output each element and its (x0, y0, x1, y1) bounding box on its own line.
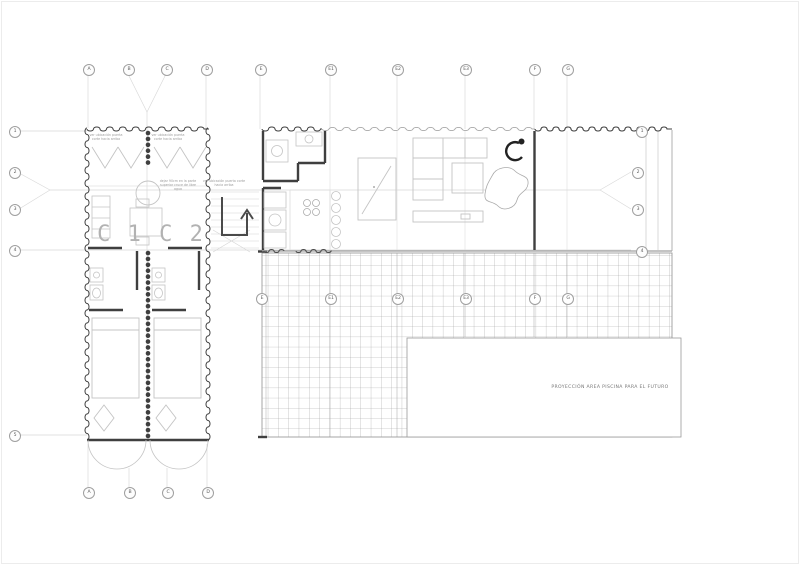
grid-marker-right-2: 2 (632, 167, 644, 179)
grid-marker-deck-e: E (256, 293, 268, 305)
grid-marker-top-b: B (123, 64, 135, 76)
deck-area (258, 252, 681, 438)
grid-marker-deck-e3: E3 (460, 293, 472, 305)
grid-marker-right-4: 4 (636, 246, 648, 258)
floor-plan-canvas: A B C D E E1 E2 E3 F G A B C D 1 2 3 4 5… (0, 0, 800, 565)
plan-linework (0, 0, 800, 565)
grid-marker-left-5: 5 (9, 430, 21, 442)
rug-outline (485, 168, 528, 209)
unit-label-c2: C 2 (156, 222, 208, 247)
grid-marker-top-e2: E2 (392, 64, 404, 76)
grid-marker-deck-e1: E1 (325, 293, 337, 305)
grid-marker-deck-e2: E2 (392, 293, 404, 305)
grid-marker-top-e1: E1 (325, 64, 337, 76)
grid-marker-left-3: 3 (9, 204, 21, 216)
grid-marker-top-d: D (201, 64, 213, 76)
grid-marker-top-a: A (83, 64, 95, 76)
grid-marker-right-3: 3 (632, 204, 644, 216)
grid-marker-bottom-d: D (202, 487, 214, 499)
grid-marker-deck-f: F (529, 293, 541, 305)
grid-marker-top-e3: E3 (460, 64, 472, 76)
grid-marker-bottom-c: C (162, 487, 174, 499)
grid-marker-left-2: 2 (9, 167, 21, 179)
grid-marker-left-1: 1 (9, 126, 21, 138)
unit-label-c1: C 1 (94, 222, 146, 247)
annotation-stairs: ver ubicación puerta corte hacia arriba (202, 180, 246, 188)
grid-marker-deck-g: G (562, 293, 574, 305)
grid-marker-bottom-b: B (124, 487, 136, 499)
grid-marker-right-1: 1 (636, 126, 648, 138)
main-wing (262, 130, 672, 251)
fireplace-icon (506, 139, 524, 161)
annotation-c2-top: ver ubicación puerta corte hacia arriba (150, 134, 186, 142)
annotation-c1-top: ver ubicación puerta corte hacia arriba (88, 134, 124, 142)
grid-marker-top-e: E (255, 64, 267, 76)
grid-marker-top-c: C (161, 64, 173, 76)
stairs (211, 192, 259, 252)
annotation-center: dejar 90cm en la parte superior cruce de… (156, 180, 200, 192)
grid-marker-left-4: 4 (9, 245, 21, 257)
grid-marker-top-f: F (529, 64, 541, 76)
grid-marker-top-g: G (562, 64, 574, 76)
pool-projection-label: PROYECCIÓN AREA PISCINA PARA EL FUTURO (470, 385, 750, 390)
grid-marker-bottom-a: A (83, 487, 95, 499)
